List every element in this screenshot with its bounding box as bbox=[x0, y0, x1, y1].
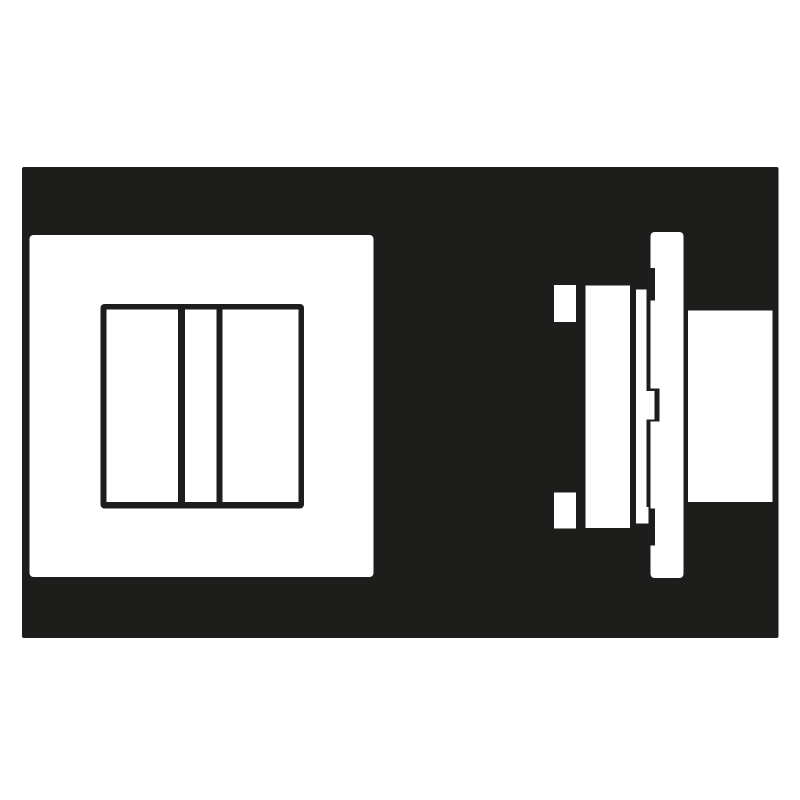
mounting-claw-top bbox=[554, 285, 576, 322]
wall-flange bbox=[688, 311, 773, 503]
rocker-left bbox=[107, 310, 179, 503]
rocker-right bbox=[223, 310, 299, 503]
mechanism-body bbox=[586, 286, 631, 529]
mounting-claw-bottom bbox=[554, 493, 576, 529]
center-module bbox=[185, 310, 217, 503]
pictogram-canvas bbox=[0, 0, 800, 800]
front-view bbox=[30, 235, 374, 577]
switch-pictogram bbox=[0, 0, 800, 800]
